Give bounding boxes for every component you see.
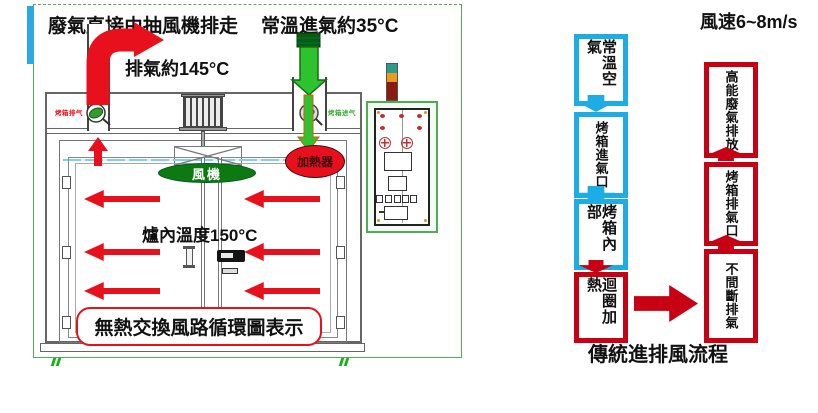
oven-caption: 無熱交換風路循環圖表示 — [94, 313, 303, 340]
oven-airflow-diagram: 廢氣直接由抽風機排走 常溫進氣約35°C 排氣約145°C — [0, 0, 818, 413]
oven-foot — [52, 353, 66, 362]
flow-box-oven-inlet: 烤箱進氣口 — [574, 112, 628, 198]
tower-light-icon — [386, 63, 398, 101]
oven-foot — [340, 353, 354, 362]
panel-drawer-handle — [379, 211, 384, 213]
panel-switch — [376, 195, 383, 203]
indicator-light — [399, 114, 404, 118]
intake-temp-title: 常溫進氣約35°C — [261, 11, 398, 38]
hinge — [336, 176, 345, 189]
left-edge-bar — [27, 6, 34, 64]
heater-label: 加熱器 — [297, 153, 333, 170]
indicator-light — [380, 114, 385, 118]
motor — [183, 97, 223, 127]
thermometer-icon — [183, 246, 195, 268]
hinge — [336, 316, 345, 329]
panel-display-small — [388, 176, 407, 191]
knob-icon — [379, 137, 391, 149]
flow-box-loop-heating: 迴圈加熱 — [574, 272, 628, 343]
knob-icon — [401, 137, 413, 149]
intake-duct — [292, 77, 327, 131]
panel-display — [384, 152, 412, 171]
hinge — [62, 246, 71, 259]
fan-label: 風機 — [192, 164, 222, 183]
exhaust-flow-title: 廢氣直接由抽風機排走 — [48, 11, 238, 38]
fan-ellipse: 風機 — [158, 163, 256, 183]
indicator-light — [380, 126, 385, 130]
panel-switch — [385, 195, 392, 203]
hinge — [62, 316, 71, 329]
indicator-light — [417, 114, 422, 118]
panel-switch — [410, 195, 417, 203]
exhaust-duct — [87, 24, 110, 131]
door-latch — [222, 268, 238, 274]
oven-caption-bubble: 無熱交換風路循環圖表示 — [76, 307, 322, 346]
panel-switch — [402, 195, 409, 203]
flow-box-oven-interior: 烤箱內部 — [574, 199, 628, 270]
intake-port-label: 烤箱进气 — [328, 107, 356, 117]
exhaust-port-label: 烤箱排气 — [55, 107, 83, 117]
panel-drawer — [384, 206, 408, 220]
heater-ellipse: 加熱器 — [285, 145, 345, 178]
wind-speed-label: 風速6~8m/s — [700, 8, 798, 34]
hinge — [336, 246, 345, 259]
flowchart-caption: 傳統進排風流程 — [588, 338, 728, 367]
flow-box-oven-outlet: 烤箱排氣口 — [704, 162, 758, 246]
indicator-light — [417, 126, 422, 130]
exhaust-temp-label: 排氣約145°C — [125, 55, 229, 81]
flow-box-high-energy-exhaust: 高能廢氣排放 — [704, 62, 758, 158]
oven-temp-label: 爐內溫度150°C — [142, 221, 257, 246]
hinge — [62, 176, 71, 189]
panel-switch — [394, 195, 401, 203]
flow-arrow-right-icon — [634, 285, 698, 322]
door-handle-slot — [221, 253, 233, 258]
flow-box-continuous-exhaust: 不間斷排氣 — [704, 249, 758, 343]
